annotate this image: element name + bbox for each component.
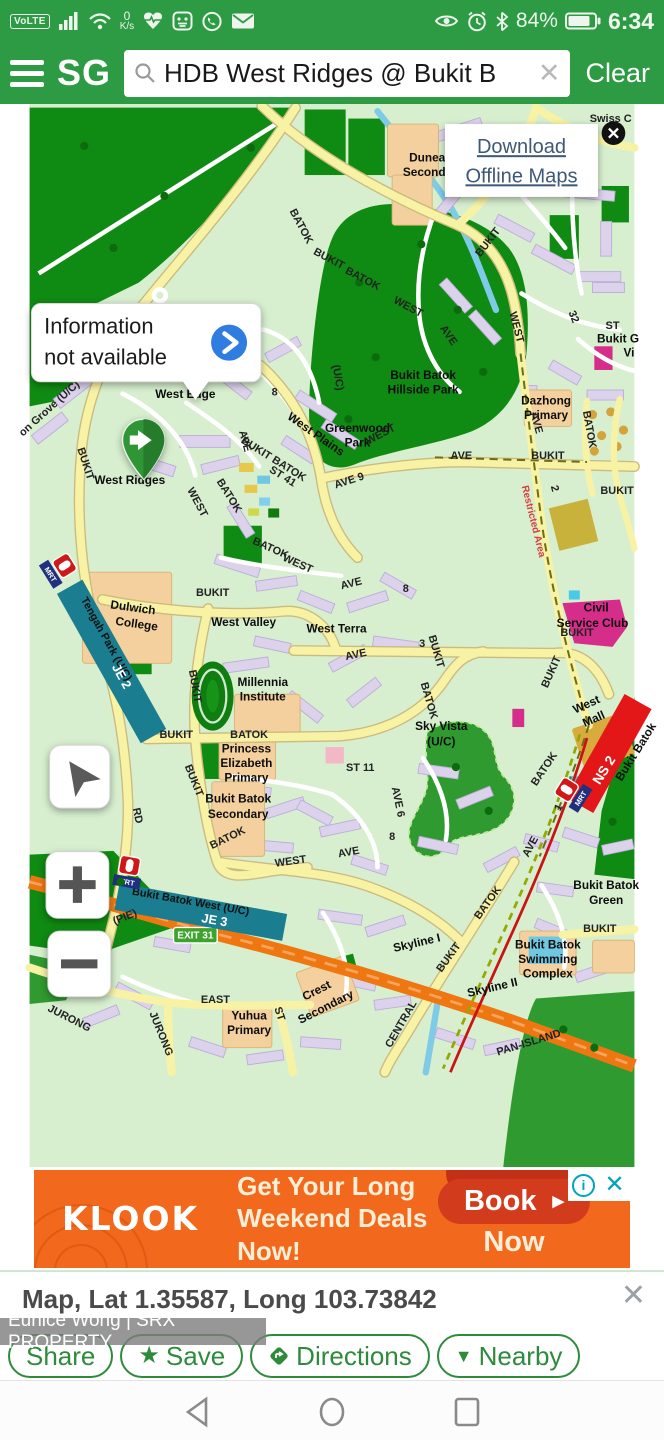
offline-maps-link-line2[interactable]: Offline Maps — [465, 165, 577, 187]
svg-text:Green: Green — [589, 893, 623, 907]
klook-ad[interactable]: KLOOK Get Your LongWeekend Deals Now! Bo… — [34, 1170, 630, 1268]
svg-text:Bukit Batok: Bukit Batok — [515, 937, 581, 951]
network-speed: 0K/s — [120, 10, 134, 32]
zoom-in-button[interactable] — [46, 852, 109, 918]
phone-screen: VoLTE 0K/s 84% 6:34 SG ✕ Clear — [0, 0, 664, 1440]
bottom-sheet: Map, Lat 1.35587, Long 103.73842 ✕ Eunic… — [0, 1270, 664, 1380]
svg-text:Bukit Batok: Bukit Batok — [205, 792, 271, 806]
svg-text:ST: ST — [606, 320, 620, 332]
svg-text:West Valley: West Valley — [211, 615, 276, 629]
mail-icon — [231, 12, 255, 30]
svg-text:BUKIT: BUKIT — [600, 485, 634, 497]
directions-icon — [268, 1345, 290, 1367]
save-button[interactable]: ★Save — [120, 1334, 243, 1378]
battery-icon — [565, 12, 601, 30]
signal-icon — [58, 11, 80, 31]
svg-text:Bukit Batok: Bukit Batok — [390, 368, 456, 382]
sheet-close-icon[interactable]: ✕ — [621, 1278, 646, 1313]
exit-badge: EXIT 31 — [177, 930, 214, 941]
directions-button[interactable]: Directions — [250, 1334, 430, 1378]
svg-text:Bukit G: Bukit G — [597, 332, 639, 346]
svg-text:8: 8 — [389, 831, 395, 843]
status-bar: VoLTE 0K/s 84% 6:34 — [0, 0, 664, 42]
svg-text:3: 3 — [419, 638, 425, 650]
svg-text:Vi: Vi — [623, 345, 634, 359]
play-arrow-icon: ▶ — [552, 1192, 564, 1210]
clock: 6:34 — [608, 8, 654, 35]
offline-maps-link-line1[interactable]: Download — [477, 136, 566, 158]
mask-app-icon — [172, 11, 193, 31]
bluetooth-icon — [495, 11, 509, 32]
callout-detail-button[interactable] — [210, 324, 248, 362]
svg-text:Hillside Park: Hillside Park — [388, 383, 459, 397]
svg-text:Sky Vista: Sky Vista — [415, 719, 468, 733]
search-clear-x-icon[interactable]: ✕ — [538, 60, 561, 87]
search-icon — [134, 62, 156, 84]
eye-comfort-icon — [434, 12, 459, 30]
battery-percent: 84% — [516, 9, 558, 33]
home-button[interactable] — [316, 1395, 348, 1429]
coordinates-title: Map, Lat 1.35587, Long 103.73842 — [22, 1284, 437, 1315]
whatsapp-icon — [201, 11, 223, 32]
menu-icon[interactable] — [10, 60, 44, 87]
app-logo: SG — [57, 52, 111, 94]
nearby-button[interactable]: ▼Nearby — [437, 1334, 581, 1378]
klook-logo: KLOOK — [62, 1199, 199, 1238]
svg-text:West Ridges: West Ridges — [94, 473, 165, 487]
svg-text:Bukit Batok: Bukit Batok — [573, 878, 639, 892]
map-canvas[interactable]: EXIT 31 Tengah Park (U/C) JE 2 MRT Bukit… — [0, 104, 664, 1167]
svg-text:Elizabeth: Elizabeth — [220, 756, 272, 770]
map-svg[interactable]: EXIT 31 Tengah Park (U/C) JE 2 MRT Bukit… — [0, 104, 664, 1167]
svg-text:8: 8 — [403, 583, 409, 595]
svg-text:West Terra: West Terra — [307, 621, 367, 635]
svg-text:BUKIT: BUKIT — [560, 627, 594, 639]
ad-cta-now: Now — [483, 1226, 544, 1259]
offline-maps-card[interactable]: Download Offline Maps — [445, 124, 598, 197]
close-icon: ✕ — [604, 1173, 624, 1197]
info-icon: i — [572, 1174, 595, 1197]
triangle-down-icon: ▼ — [455, 1347, 473, 1365]
alarm-icon — [466, 11, 488, 32]
svg-text:Princess: Princess — [222, 742, 272, 756]
wifi-icon — [88, 11, 112, 31]
volte-badge: VoLTE — [10, 14, 50, 29]
svg-text:Secondary: Secondary — [208, 807, 269, 821]
svg-text:West Edge: West Edge — [155, 387, 216, 401]
svg-text:Primary: Primary — [224, 771, 268, 785]
svg-text:Yuhua: Yuhua — [231, 1008, 267, 1022]
svg-text:BUKIT: BUKIT — [196, 587, 230, 599]
svg-text:Civil: Civil — [584, 600, 609, 614]
app-toolbar: SG ✕ Clear — [0, 42, 664, 104]
svg-text:Swimming: Swimming — [518, 952, 577, 966]
ad-info-button[interactable]: i — [568, 1170, 599, 1201]
svg-text:BUKIT: BUKIT — [160, 729, 194, 741]
svg-text:Institute: Institute — [240, 690, 286, 704]
callout-line1: Information — [44, 314, 153, 339]
svg-text:Millennia: Millennia — [237, 675, 288, 689]
android-nav-bar — [0, 1380, 664, 1440]
recents-button[interactable] — [452, 1395, 482, 1429]
svg-text:AVE: AVE — [451, 450, 473, 462]
health-heart-icon — [142, 11, 164, 31]
ad-strip: KLOOK Get Your LongWeekend Deals Now! Bo… — [0, 1167, 664, 1270]
back-button[interactable] — [182, 1396, 212, 1428]
svg-text:BUKIT: BUKIT — [531, 450, 565, 462]
ad-close-button[interactable]: ✕ — [599, 1170, 630, 1201]
svg-text:8: 8 — [272, 386, 278, 398]
svg-text:Complex: Complex — [523, 967, 573, 981]
search-input[interactable] — [162, 57, 532, 90]
zoom-out-button[interactable] — [48, 931, 111, 997]
svg-text:ST 11: ST 11 — [346, 762, 375, 774]
offline-maps-close-button[interactable] — [602, 121, 626, 145]
ad-headline: Get Your LongWeekend Deals Now! — [237, 1170, 438, 1268]
svg-text:Primary: Primary — [227, 1023, 271, 1037]
my-location-button[interactable] — [50, 745, 110, 808]
star-icon: ★ — [138, 1344, 160, 1368]
svg-text:(U/C): (U/C) — [427, 734, 455, 748]
clear-button[interactable]: Clear — [583, 58, 654, 89]
svg-text:BUKIT: BUKIT — [583, 923, 617, 935]
search-box[interactable]: ✕ — [124, 50, 570, 97]
svg-text:BATOK: BATOK — [230, 729, 268, 741]
share-button[interactable]: Share — [8, 1334, 113, 1378]
svg-text:EAST: EAST — [201, 994, 230, 1006]
svg-text:Dazhong: Dazhong — [521, 394, 571, 408]
callout-line2: not available — [44, 345, 167, 370]
